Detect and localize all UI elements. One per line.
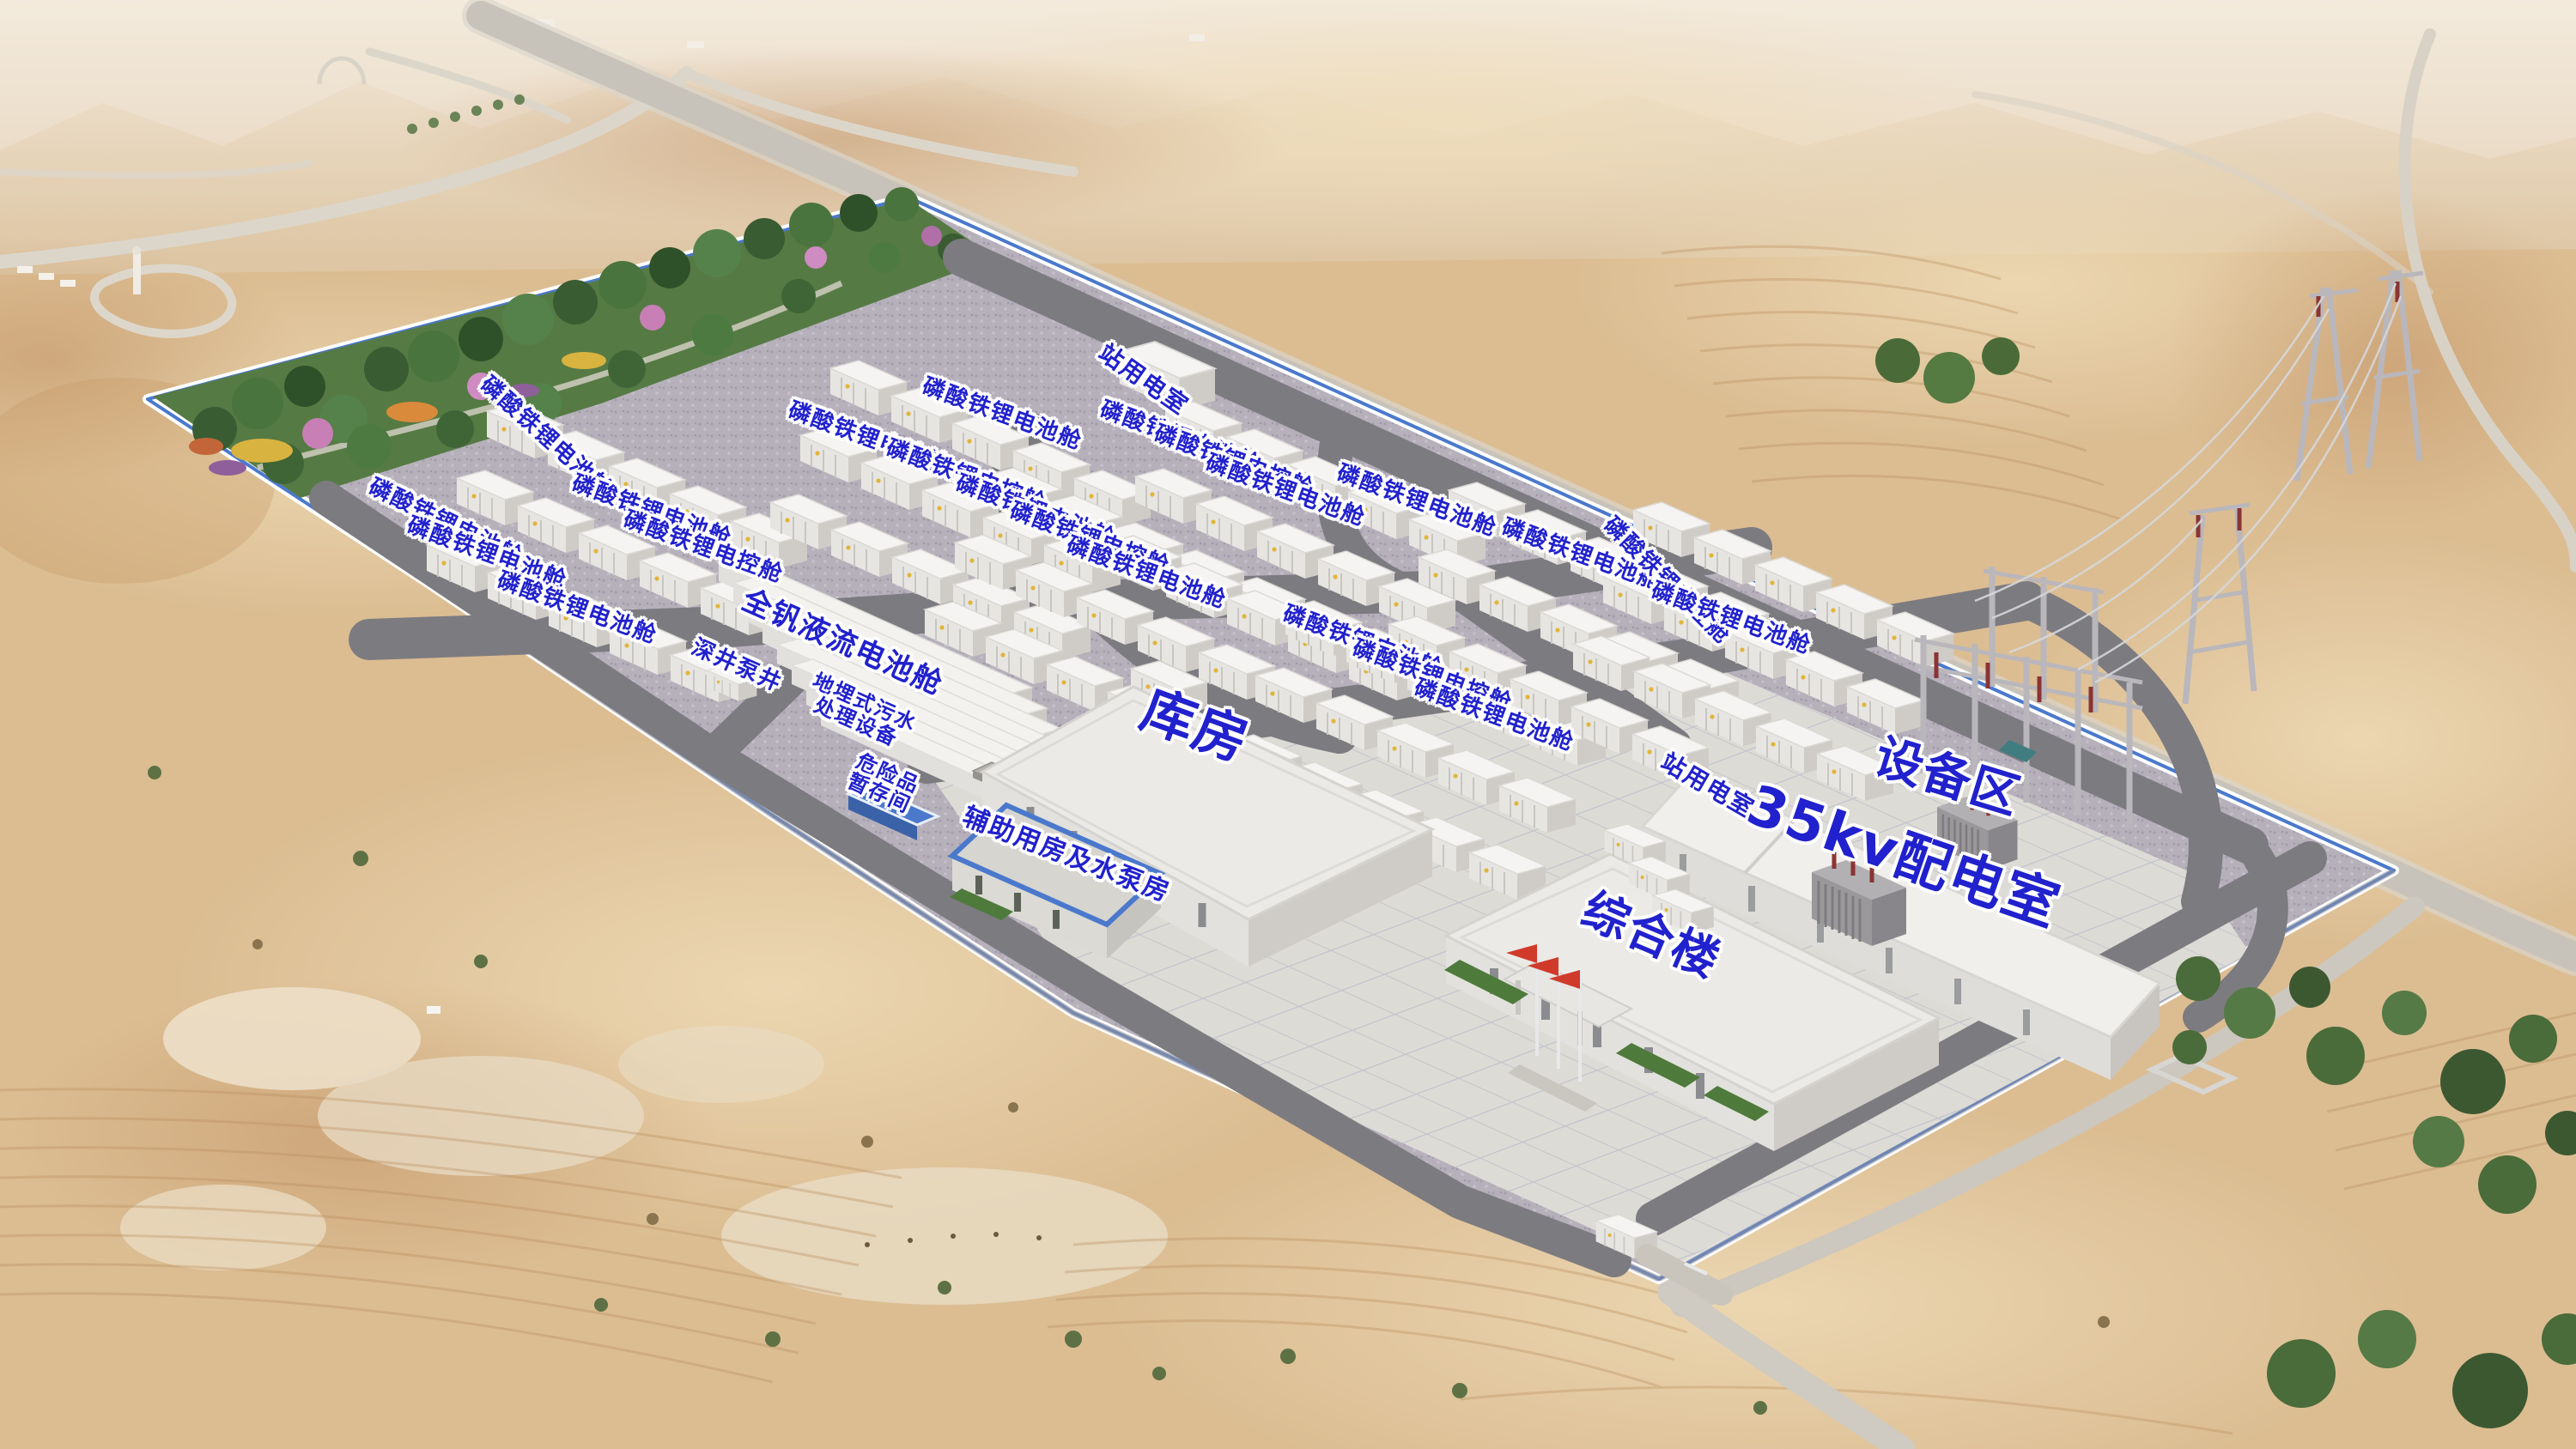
aerial-render: 站用电室磷酸铁锂电池舱磷酸铁锂电池舱磷酸铁锂电控舱磷酸铁锂电池舱磷酸铁锂电池舱磷… xyxy=(0,0,2576,1449)
distant-vehicle xyxy=(427,1006,440,1014)
scene-canvas xyxy=(0,0,2576,1449)
distant-tower xyxy=(133,253,141,294)
